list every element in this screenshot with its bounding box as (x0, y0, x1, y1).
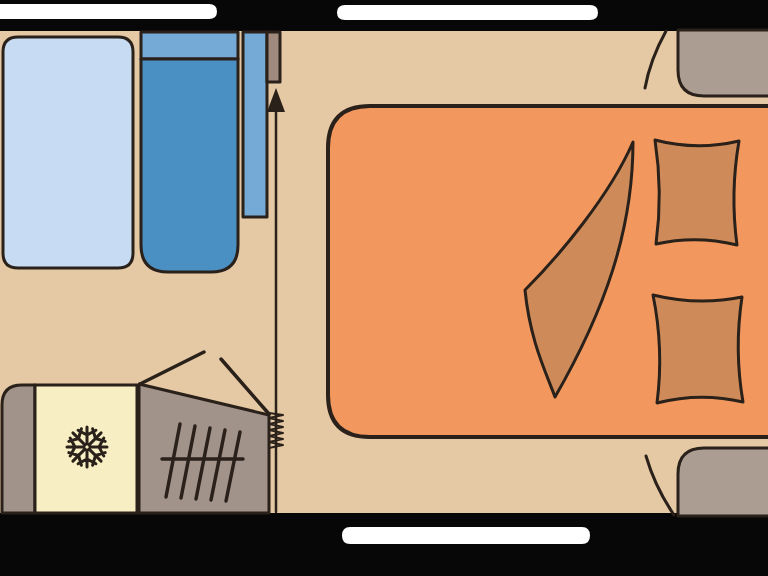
window-top-right (337, 5, 598, 20)
wall-bottom (0, 513, 768, 576)
seat-backrest-side (243, 32, 267, 217)
wall-cabinet (267, 32, 280, 82)
bed-pillow-top (655, 140, 739, 245)
seat-backrest-top (141, 32, 238, 59)
window-top-left (0, 4, 217, 19)
caravan-floorplan (0, 0, 768, 576)
dinette-table (3, 37, 133, 268)
corner-unit-bottom-right (678, 448, 768, 516)
seat-cushion (141, 59, 238, 272)
corner-unit-top-right (678, 30, 768, 96)
bed-pillow-bottom (653, 295, 743, 403)
kitchen-unit-end (2, 385, 35, 513)
window-bottom (342, 527, 590, 544)
